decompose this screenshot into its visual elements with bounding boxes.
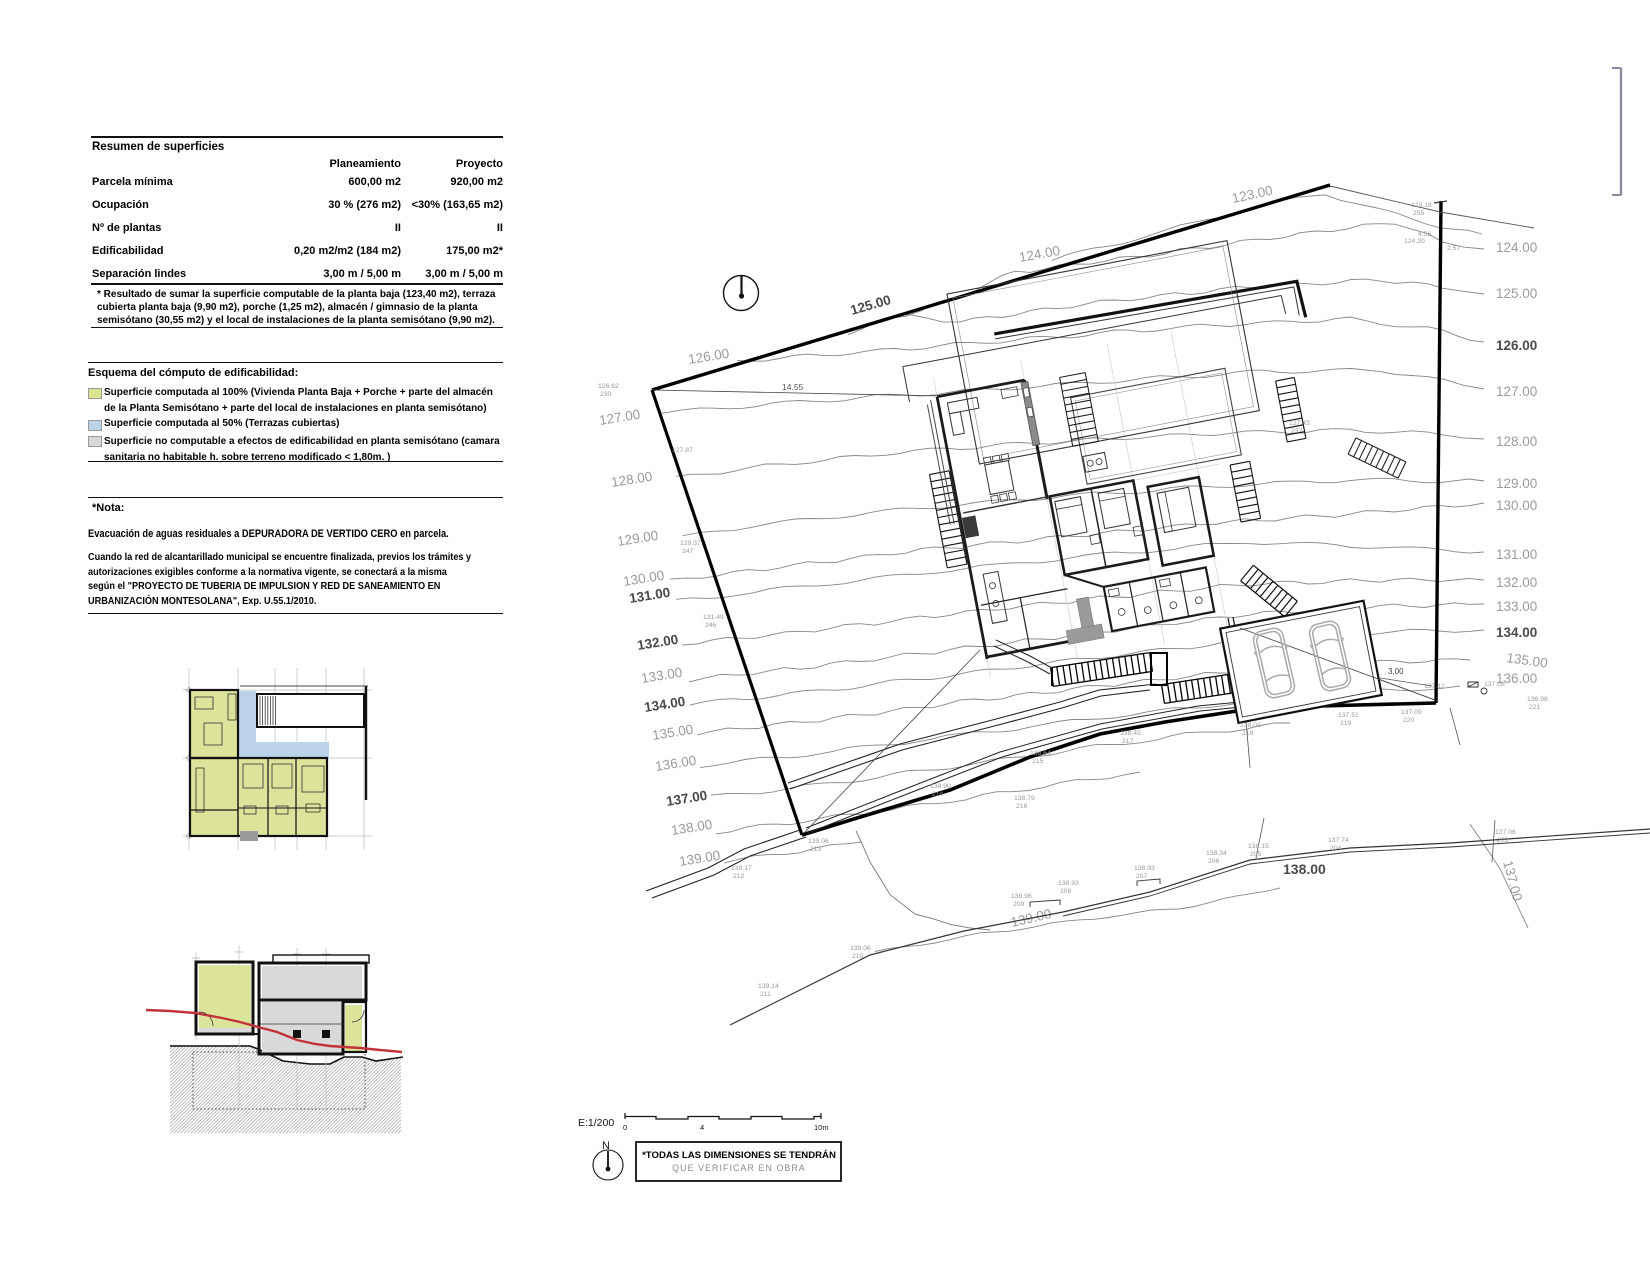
svg-text:137.08: 137.08 <box>1484 681 1505 688</box>
svg-text:123.18: 123.18 <box>1411 202 1432 209</box>
svg-text:10m: 10m <box>814 1123 829 1132</box>
svg-text:138.93: 138.93 <box>1134 865 1155 872</box>
svg-text:230: 230 <box>600 391 612 398</box>
svg-text:138.93: 138.93 <box>1058 880 1079 887</box>
svg-text:212: 212 <box>733 873 745 880</box>
svg-text:138.15: 138.15 <box>1248 843 1269 850</box>
svg-text:129.00: 129.00 <box>616 528 659 549</box>
svg-text:128.00: 128.00 <box>610 469 653 490</box>
svg-text:127.87: 127.87 <box>672 447 693 454</box>
svg-text:137.00: 137.00 <box>665 788 708 809</box>
svg-text:125.00: 125.00 <box>849 292 893 318</box>
svg-text:138.96: 138.96 <box>1011 893 1032 900</box>
svg-text:205: 205 <box>1250 851 1262 858</box>
svg-text:135.00: 135.00 <box>651 722 694 743</box>
svg-text:220: 220 <box>1403 717 1415 724</box>
svg-text:139.06: 139.06 <box>850 945 871 952</box>
svg-text:210: 210 <box>852 953 864 960</box>
svg-text:137.51: 137.51 <box>1338 712 1359 719</box>
svg-text:138.01: 138.01 <box>1240 722 1261 729</box>
svg-text:136.00: 136.00 <box>654 753 697 774</box>
svg-text:*TODAS LAS DIMENSIONES SE TEND: *TODAS LAS DIMENSIONES SE TENDRÁN <box>642 1149 836 1161</box>
svg-text:129.00: 129.00 <box>1496 476 1537 491</box>
svg-text:203: 203 <box>1497 837 1509 844</box>
svg-text:129.37: 129.37 <box>680 540 701 547</box>
svg-text:133.00: 133.00 <box>1496 599 1537 614</box>
svg-text:221: 221 <box>1529 704 1541 711</box>
svg-text:247: 247 <box>682 548 694 555</box>
svg-text:132.00: 132.00 <box>636 632 679 653</box>
svg-text:218: 218 <box>1242 730 1254 737</box>
svg-text:214: 214 <box>932 791 944 798</box>
svg-text:134.00: 134.00 <box>643 694 686 715</box>
svg-text:136.98: 136.98 <box>1527 696 1548 703</box>
svg-text:138.00: 138.00 <box>670 817 713 838</box>
svg-text:137.12: 137.12 <box>1424 683 1445 690</box>
svg-text:207: 207 <box>1136 873 1148 880</box>
svg-text:E:1/200: E:1/200 <box>578 1117 614 1129</box>
svg-text:208: 208 <box>1060 888 1072 895</box>
svg-text:217: 217 <box>1122 738 1134 745</box>
svg-text:216: 216 <box>1016 803 1028 810</box>
svg-text:131.00: 131.00 <box>628 585 671 606</box>
svg-text:138.00: 138.00 <box>1283 861 1326 877</box>
svg-text:128.00: 128.00 <box>1496 434 1537 449</box>
svg-text:137.74: 137.74 <box>1328 837 1349 844</box>
svg-text:139.06: 139.06 <box>808 838 829 845</box>
svg-text:204: 204 <box>1330 845 1342 852</box>
svg-text:124.00: 124.00 <box>1496 240 1537 255</box>
svg-text:124.20: 124.20 <box>1404 238 1425 245</box>
svg-text:138.79: 138.79 <box>1014 795 1035 802</box>
svg-text:246: 246 <box>705 622 717 629</box>
svg-text:14.55: 14.55 <box>782 382 804 392</box>
svg-text:206: 206 <box>1208 858 1220 865</box>
svg-text:139.14: 139.14 <box>758 983 779 990</box>
svg-text:131.49: 131.49 <box>703 614 724 621</box>
svg-text:130.00: 130.00 <box>1496 498 1537 513</box>
svg-text:139.17: 139.17 <box>731 865 752 872</box>
svg-text:138.64: 138.64 <box>1030 750 1051 757</box>
svg-text:219: 219 <box>1340 720 1352 727</box>
svg-text:2.57: 2.57 <box>1447 245 1460 252</box>
svg-text:QUE VERIFICAR EN OBRA: QUE VERIFICAR EN OBRA <box>672 1163 806 1173</box>
svg-text:255: 255 <box>1413 210 1425 217</box>
svg-text:124.00: 124.00 <box>1018 243 1061 265</box>
svg-text:139.00: 139.00 <box>678 848 721 869</box>
svg-text:4.56: 4.56 <box>1418 231 1431 238</box>
svg-text:125.00: 125.00 <box>1496 286 1537 301</box>
svg-text:211: 211 <box>760 991 771 998</box>
svg-text:209: 209 <box>1013 901 1025 908</box>
svg-text:213: 213 <box>810 846 822 853</box>
svg-text:133.00: 133.00 <box>640 665 683 686</box>
svg-text:132.00: 132.00 <box>1496 575 1537 590</box>
svg-text:138.43: 138.43 <box>1120 730 1141 737</box>
svg-text:0: 0 <box>623 1123 627 1132</box>
svg-text:134.00: 134.00 <box>1496 625 1537 640</box>
svg-text:126.00: 126.00 <box>687 346 730 367</box>
svg-text:127.00: 127.00 <box>1496 384 1537 399</box>
svg-text:126.62: 126.62 <box>598 383 619 390</box>
svg-text:138.34: 138.34 <box>1206 850 1227 857</box>
svg-text:135.00: 135.00 <box>1506 650 1549 671</box>
svg-text:127.00: 127.00 <box>598 407 641 428</box>
svg-text:138.90: 138.90 <box>930 783 951 790</box>
svg-text:4: 4 <box>700 1123 704 1132</box>
svg-text:137.09: 137.09 <box>1401 709 1422 716</box>
svg-text:126.00: 126.00 <box>1496 338 1537 353</box>
svg-text:3,00: 3,00 <box>1388 667 1404 676</box>
svg-text:137.06: 137.06 <box>1495 829 1516 836</box>
svg-text:215: 215 <box>1032 758 1044 765</box>
svg-text:131.00: 131.00 <box>1496 547 1537 562</box>
